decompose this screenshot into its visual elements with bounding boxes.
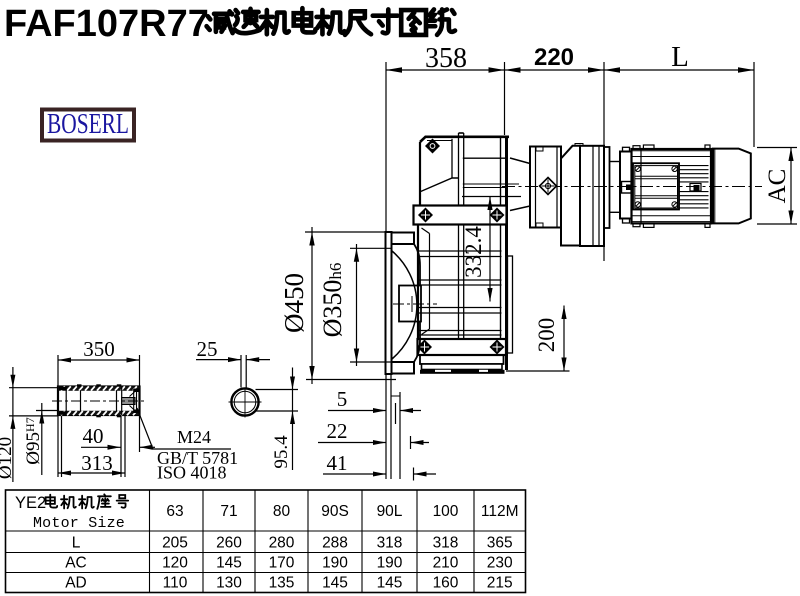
svg-text:190: 190 bbox=[322, 555, 348, 572]
svg-text:95.4: 95.4 bbox=[271, 435, 292, 469]
svg-text:145: 145 bbox=[377, 575, 403, 592]
svg-text:BOSERL: BOSERL bbox=[47, 109, 129, 140]
svg-text:205: 205 bbox=[162, 535, 188, 552]
svg-text:215: 215 bbox=[487, 575, 513, 592]
svg-text:90L: 90L bbox=[377, 503, 403, 520]
svg-text:5: 5 bbox=[337, 387, 348, 411]
svg-text:318: 318 bbox=[377, 535, 403, 552]
svg-text:Motor Size: Motor Size bbox=[33, 515, 125, 532]
svg-text:63: 63 bbox=[166, 503, 183, 520]
svg-text:230: 230 bbox=[487, 555, 513, 572]
svg-text:200: 200 bbox=[534, 318, 559, 353]
svg-text:25: 25 bbox=[197, 337, 218, 361]
svg-text:130: 130 bbox=[216, 575, 242, 592]
svg-text:L: L bbox=[671, 41, 689, 73]
svg-text:Ø120: Ø120 bbox=[0, 437, 16, 479]
svg-text:ISO 4018: ISO 4018 bbox=[157, 463, 227, 483]
svg-text:AC: AC bbox=[764, 169, 791, 204]
svg-text:120: 120 bbox=[162, 555, 188, 572]
svg-text:190: 190 bbox=[377, 555, 403, 572]
svg-text:112M: 112M bbox=[481, 503, 519, 520]
svg-text:358: 358 bbox=[425, 43, 467, 74]
svg-text:M24: M24 bbox=[177, 427, 211, 447]
svg-text:Ø350h6: Ø350h6 bbox=[318, 263, 347, 338]
svg-text:210: 210 bbox=[433, 555, 459, 572]
svg-text:110: 110 bbox=[163, 575, 188, 592]
svg-text:AC: AC bbox=[65, 555, 87, 572]
svg-text:280: 280 bbox=[269, 535, 295, 552]
svg-text:260: 260 bbox=[216, 535, 242, 552]
svg-text:90S: 90S bbox=[321, 503, 349, 520]
svg-text:145: 145 bbox=[216, 555, 242, 572]
svg-text:22: 22 bbox=[327, 419, 348, 443]
svg-text:71: 71 bbox=[220, 503, 237, 520]
svg-text:L: L bbox=[72, 535, 81, 552]
svg-text:220: 220 bbox=[534, 44, 574, 71]
svg-text:YE2: YE2 bbox=[15, 494, 46, 512]
svg-text:288: 288 bbox=[322, 535, 348, 552]
svg-text:313: 313 bbox=[81, 451, 113, 475]
svg-text:41: 41 bbox=[327, 451, 348, 475]
svg-text:365: 365 bbox=[487, 535, 513, 552]
svg-text:145: 145 bbox=[322, 575, 348, 592]
svg-text:40: 40 bbox=[83, 424, 104, 448]
svg-text:FAF107R77: FAF107R77 bbox=[4, 3, 209, 45]
svg-text:Ø95H7: Ø95H7 bbox=[23, 417, 44, 464]
svg-text:170: 170 bbox=[269, 555, 295, 572]
svg-text:332.4: 332.4 bbox=[461, 226, 486, 278]
svg-text:318: 318 bbox=[433, 535, 459, 552]
svg-text:AD: AD bbox=[65, 575, 87, 592]
svg-text:80: 80 bbox=[273, 503, 291, 520]
svg-text:160: 160 bbox=[433, 575, 459, 592]
svg-text:350: 350 bbox=[83, 337, 115, 361]
svg-text:100: 100 bbox=[433, 503, 459, 520]
svg-text:Ø450: Ø450 bbox=[279, 273, 309, 333]
svg-text:135: 135 bbox=[269, 575, 295, 592]
